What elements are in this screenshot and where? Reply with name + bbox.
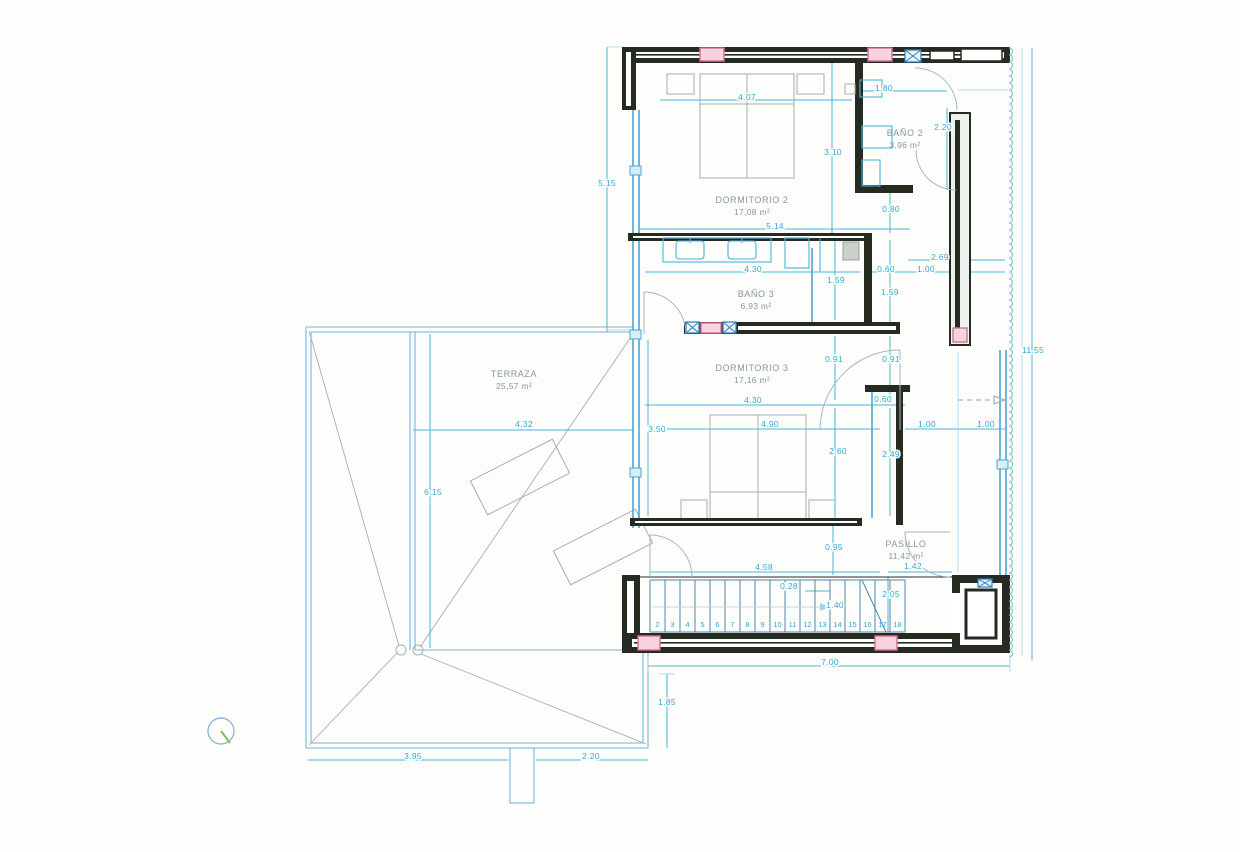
door-arc — [915, 68, 957, 110]
dimension-label: 2.69 — [931, 252, 949, 262]
direction-arrow — [958, 396, 1005, 404]
room-label-terraza: TERRAZA — [491, 369, 537, 379]
stair-step-number: 10 — [773, 620, 781, 629]
nightstand — [681, 500, 707, 520]
dimension-label: 1.42 — [904, 561, 922, 571]
dimension-label: 1.00 — [917, 264, 935, 274]
dimension-label: 3.95 — [404, 751, 422, 761]
stair-step-number: 11 — [789, 620, 797, 629]
dimension-label: 4.30 — [744, 264, 762, 274]
dimension-label: 3.50 — [648, 424, 666, 434]
stair-step-number: 5 — [700, 620, 704, 629]
room-area-bano-3: 6,93 m² — [741, 301, 772, 311]
column-marker — [638, 636, 660, 650]
room-area-dormitorio-2: 17,08 m² — [734, 207, 770, 217]
stair-step-number: 4 — [685, 620, 689, 629]
room-label-dormitorio-3: DORMITORIO 3 — [715, 363, 788, 373]
mullion — [630, 330, 641, 339]
nightstand — [797, 74, 824, 94]
sink — [728, 241, 756, 259]
dimension-label: 3.10 — [824, 147, 842, 157]
stair-step-number: 3 — [670, 620, 674, 629]
door-arc — [644, 292, 686, 334]
column-marker — [868, 48, 892, 61]
column-x-marker — [686, 322, 699, 333]
sink — [676, 241, 704, 259]
stair-step-number: 18 — [893, 620, 901, 629]
stair-step-number: 15 — [848, 620, 856, 629]
dimension-label: 2.05 — [882, 589, 900, 599]
room-area-bano-2: 3,96 m² — [890, 140, 921, 150]
dimension-label: 1.00 — [918, 419, 936, 429]
dimension-label: 0.80 — [882, 204, 900, 214]
column-x-marker — [905, 50, 921, 62]
faucet — [845, 84, 855, 94]
stair-step-number: 9 — [760, 620, 764, 629]
column-x-marker — [978, 579, 992, 587]
stair-step-number: 16 — [863, 620, 871, 629]
nightstand — [667, 74, 694, 94]
dimension-label: 0.60 — [874, 394, 892, 404]
door-arc — [650, 535, 692, 577]
floor-plan-svg: 23456789101112131415161718 5.154.071.802… — [0, 0, 1240, 852]
dimension-label: 7.00 — [821, 657, 839, 667]
dimension-label: 4.07 — [738, 92, 756, 102]
mullion — [630, 166, 641, 175]
dimension-label: 4.30 — [744, 395, 762, 405]
room-area-pasillo: 11,42 m² — [888, 551, 923, 561]
room-area-dormitorio-3: 17,16 m² — [734, 375, 770, 385]
room-label-dormitorio-2: DORMITORIO 2 — [715, 195, 788, 205]
dimension-label: 1.59 — [881, 287, 899, 297]
dimension-label: 5.14 — [766, 221, 784, 231]
window-slot — [930, 51, 954, 60]
dimension-label: 0.95 — [825, 542, 843, 552]
dimension-label: 2.20 — [582, 751, 600, 761]
right-boundary — [1009, 48, 1013, 657]
nightstand — [809, 500, 835, 520]
lounger — [470, 439, 569, 515]
room-area-terraza: 25,57 m² — [496, 381, 532, 391]
column-marker — [700, 48, 724, 61]
column-x-marker — [723, 322, 736, 333]
stairs: 23456789101112131415161718 — [650, 580, 905, 632]
stair-step-number: 8 — [745, 620, 749, 629]
sliding-shutter — [950, 113, 970, 345]
dimension-label: 0.91 — [825, 354, 843, 364]
shower — [785, 238, 809, 268]
dimension-label: 0.60 — [877, 264, 895, 274]
dimension-label: 1.85 — [658, 697, 676, 707]
dimension-label: 2.20 — [934, 122, 952, 132]
dimension-lines — [308, 47, 1032, 760]
dimension-label: 4.90 — [761, 419, 779, 429]
chimney — [510, 748, 534, 803]
window-slot — [961, 49, 1002, 61]
roof-drain-icon — [396, 645, 406, 655]
dimension-label: 4.32 — [515, 419, 533, 429]
dimension-label: 5.15 — [598, 178, 616, 188]
compass-icon — [208, 718, 234, 744]
dimension-label: 1.59 — [827, 275, 845, 285]
stair-step-number: 6 — [715, 620, 719, 629]
column-marker — [953, 328, 967, 342]
dimension-label: 1.40 — [826, 600, 844, 610]
toilet — [843, 242, 859, 260]
stair-step-numbers: 23456789101112131415161718 — [655, 620, 901, 629]
mullion — [997, 460, 1008, 469]
room-label-pasillo: PASILLO — [885, 539, 926, 549]
stair-step-number: 14 — [833, 620, 841, 629]
dimension-label: 1.80 — [875, 83, 893, 93]
stair-step-number: 17 — [878, 620, 886, 629]
dimension-label: 4.58 — [755, 562, 773, 572]
dimension-label: 2.60 — [829, 446, 847, 456]
dimension-label: 6.15 — [424, 487, 442, 497]
boundary-scallop-line — [1009, 48, 1013, 657]
room-label-bano-3: BAÑO 3 — [738, 289, 775, 299]
dimension-label: 0.91 — [882, 354, 900, 364]
stair-step-number: 7 — [730, 620, 734, 629]
column-marker — [875, 636, 897, 650]
dimension-label: 2.49 — [882, 449, 900, 459]
toilet — [862, 160, 880, 186]
stair-step-number: 2 — [655, 620, 659, 629]
dimension-label: 11.55 — [1022, 345, 1044, 355]
floorplan-page: 23456789101112131415161718 5.154.071.802… — [0, 0, 1240, 852]
stair-step-number: 13 — [818, 620, 826, 629]
stair-step-number: 12 — [803, 620, 811, 629]
column-marker — [701, 323, 721, 333]
mullion — [630, 468, 641, 477]
room-label-bano-2: BAÑO 2 — [887, 128, 924, 138]
dimension-label: 1.00 — [977, 419, 995, 429]
dimension-label: 0.28 — [780, 581, 798, 591]
